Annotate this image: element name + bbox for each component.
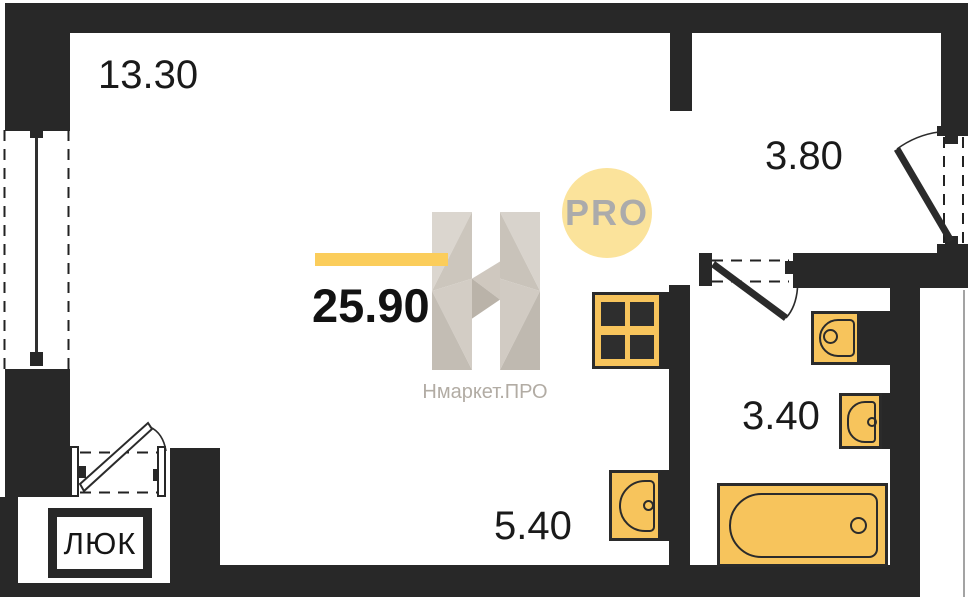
- building-outline-line: [963, 290, 965, 597]
- living-room-area-label: 13.30: [98, 55, 198, 95]
- entrance-door-frame-top: [937, 126, 968, 136]
- stove-burner-icon: [630, 335, 654, 359]
- wall-top: [5, 3, 968, 33]
- hall-area-label: 3.80: [765, 136, 843, 176]
- wall-left-mid-block: [5, 378, 70, 497]
- window-mullion-top: [30, 126, 43, 138]
- stove-wall-strip: [660, 292, 669, 369]
- bath-door-jamb-left: [699, 253, 712, 286]
- wall-bath-top: [793, 253, 968, 288]
- loggia-door: [80, 423, 166, 493]
- entrance-door: [897, 132, 963, 245]
- pro-badge-label: PRO: [565, 192, 649, 233]
- bathtub-drain: [850, 517, 867, 534]
- wall-kitchen-bath-divider: [669, 285, 690, 566]
- toilet-icon: [811, 311, 860, 365]
- stove-burner-icon: [601, 335, 625, 359]
- stove-burner-icon: [601, 302, 625, 326]
- bathroom-sink-wall-strip: [882, 393, 890, 449]
- total-area-value: 25.90: [312, 282, 430, 329]
- kitchen-sink-wall-strip: [660, 470, 669, 541]
- entrance-door-stop-bottom: [945, 236, 958, 244]
- brand-h-logo-icon: [432, 212, 540, 370]
- wall-right-top: [941, 33, 968, 126]
- entrance-door-stop-top: [945, 136, 958, 144]
- total-area-underline: [315, 253, 448, 266]
- bathroom-area-label: 3.40: [742, 396, 820, 436]
- loggia-door-jamb-left: [70, 446, 79, 497]
- hatch-label: ЛЮК: [64, 528, 137, 559]
- toilet-cistern: [860, 311, 890, 365]
- bathtub-icon: [717, 483, 888, 567]
- wall-hall-stub: [670, 33, 692, 111]
- wall-loggia-left: [0, 497, 18, 597]
- window-mullion-bottom: [30, 352, 43, 366]
- floorplan-canvas: PRO Нмаркет.ПРО 25.90: [0, 0, 971, 600]
- wall-bath-right: [890, 288, 920, 597]
- stove-icon: [592, 292, 662, 369]
- kitchen-sink-icon: [609, 470, 661, 541]
- kitchen-area-label: 5.40: [494, 506, 572, 546]
- brand-watermark-text: Нмаркет.ПРО: [390, 382, 580, 402]
- stove-burner-icon: [630, 302, 654, 326]
- bathroom-sink-icon: [839, 393, 882, 449]
- wall-bottom: [218, 565, 920, 597]
- entrance-door-frame-bottom: [937, 244, 968, 254]
- loggia-door-jamb-right: [157, 446, 166, 497]
- wall-loggia-right-chunk: [170, 448, 220, 588]
- toilet-flush-dot: [823, 329, 838, 344]
- wall-top-left-block: [5, 3, 70, 122]
- kitchen-sink-tap: [643, 500, 654, 511]
- bath-door-stop: [785, 261, 795, 274]
- hatch-box: ЛЮК: [48, 508, 152, 578]
- bathroom-sink-tap: [867, 417, 877, 427]
- pro-badge: PRO: [562, 168, 652, 258]
- window-glass-line: [35, 134, 38, 356]
